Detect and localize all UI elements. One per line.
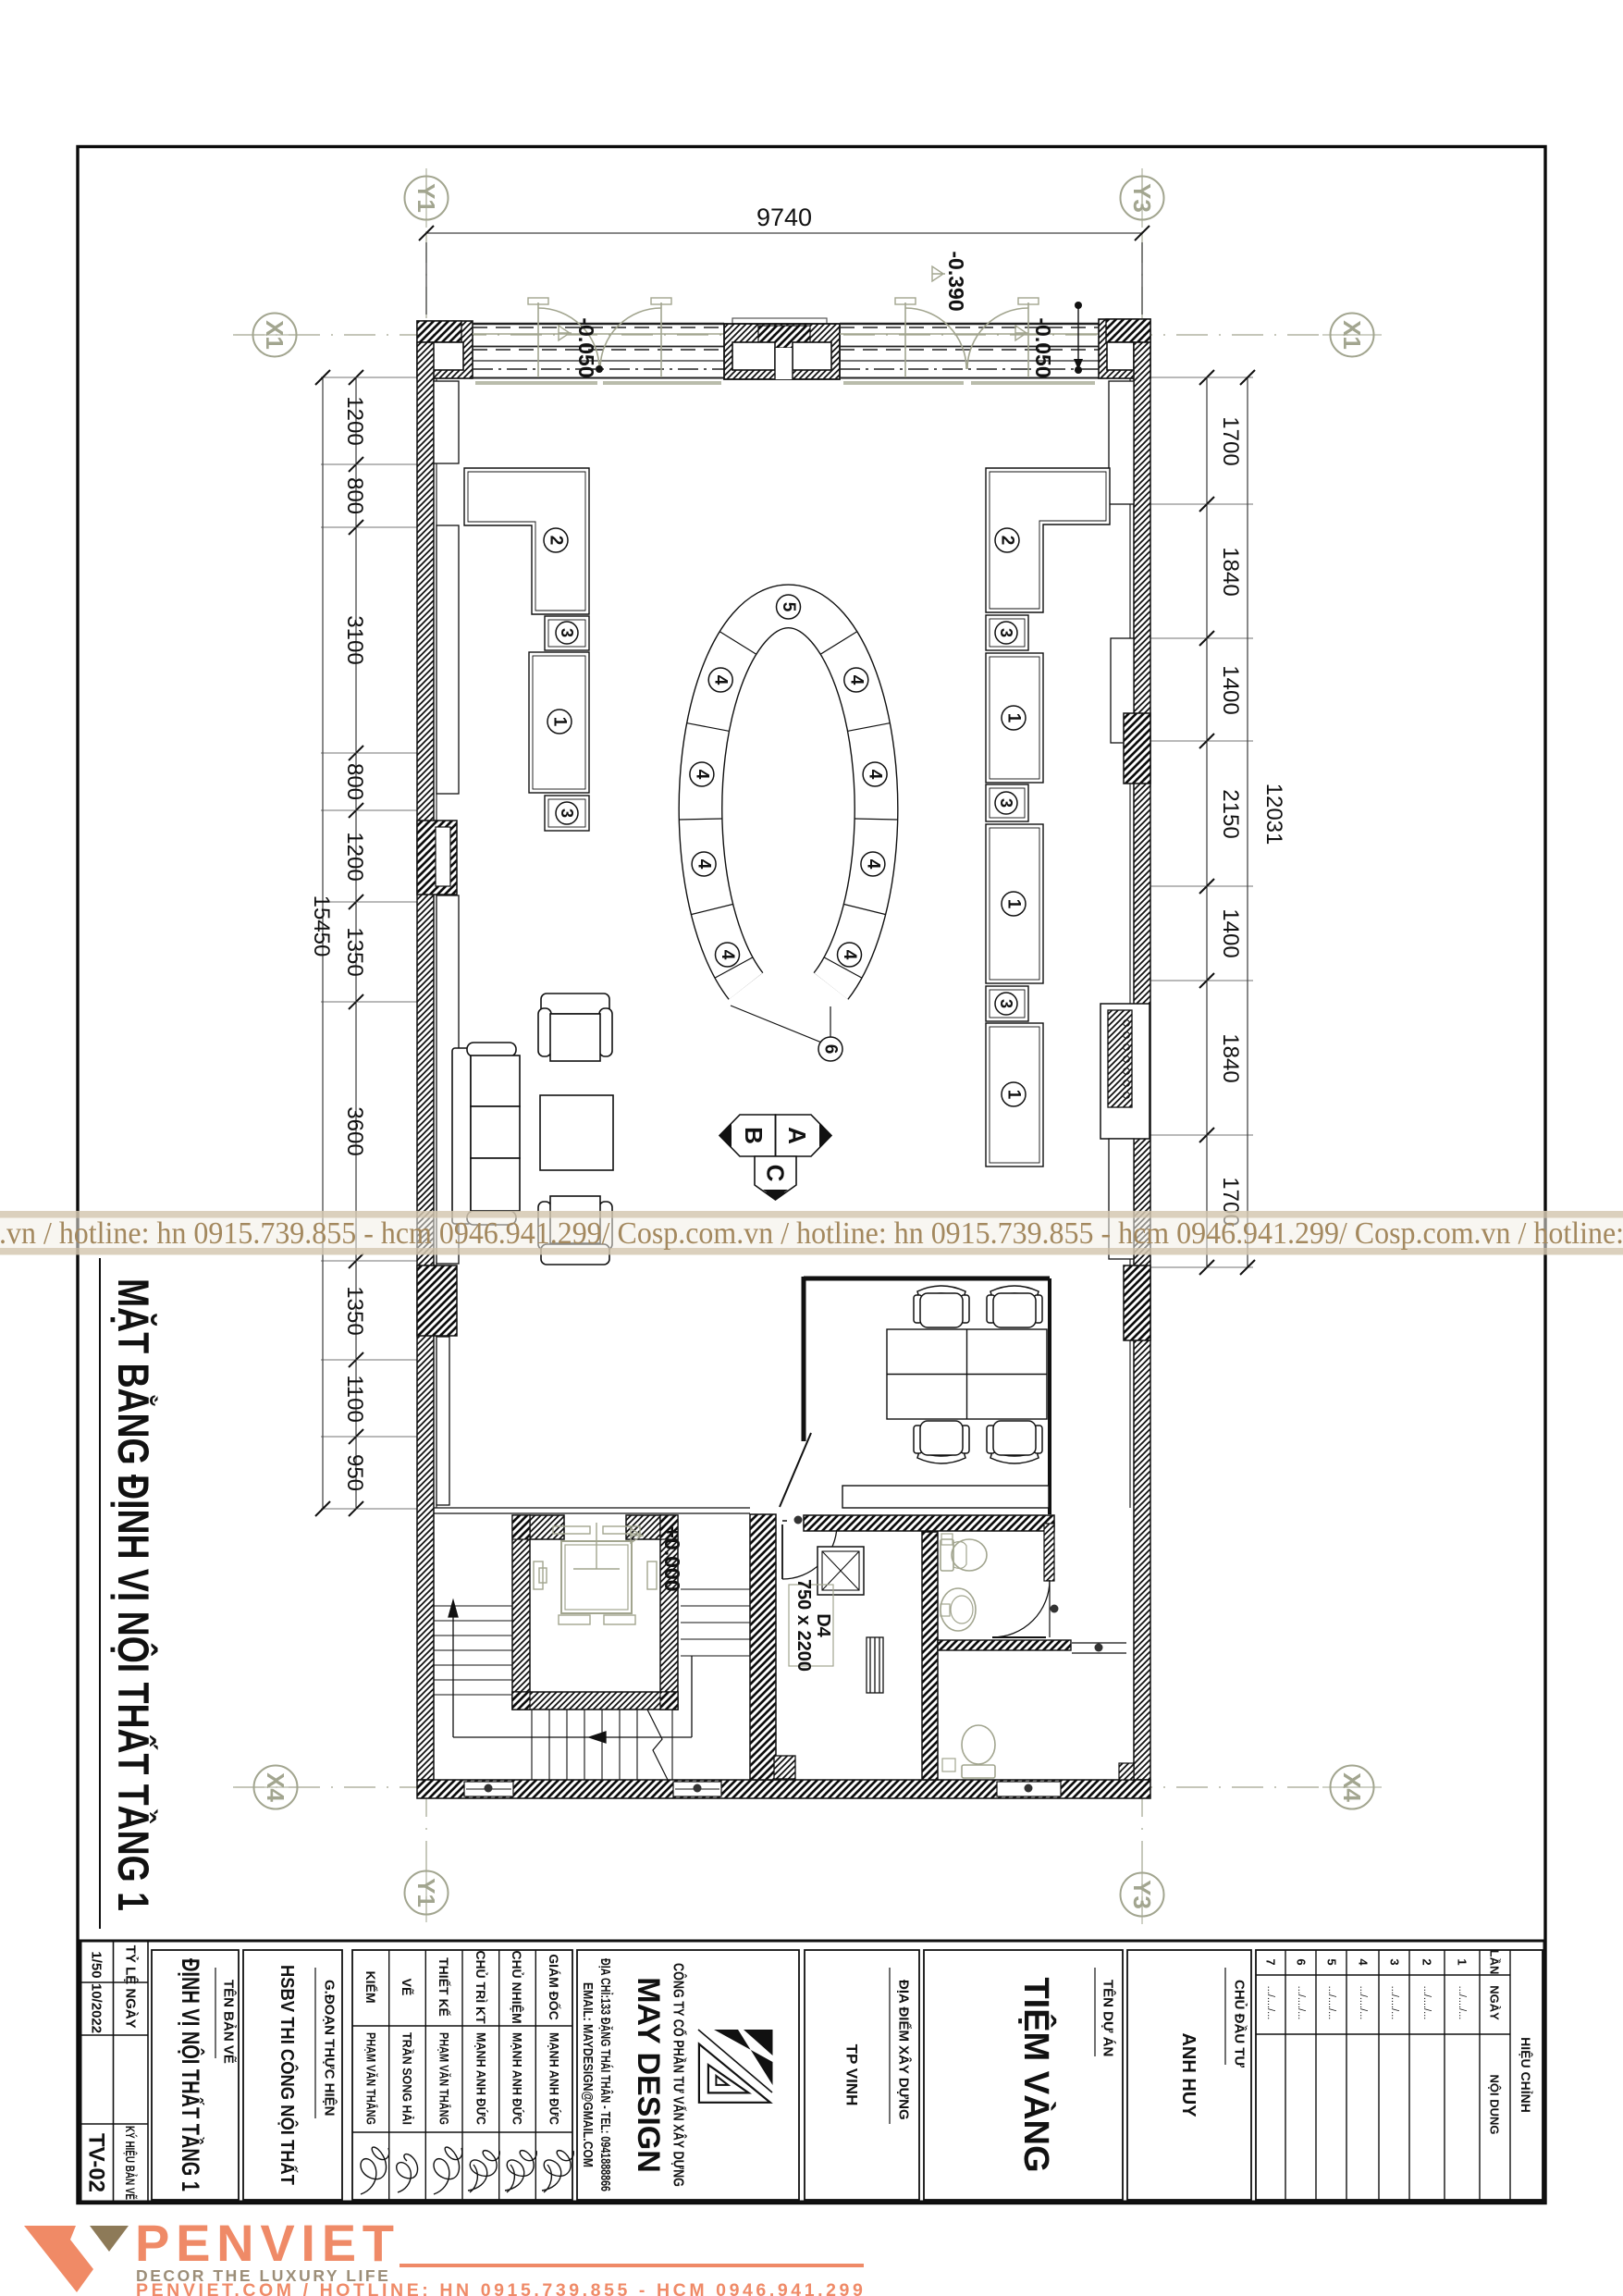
svg-text:1/50: 1/50 xyxy=(89,1951,105,1978)
svg-text:4: 4 xyxy=(695,859,714,870)
svg-text:4: 4 xyxy=(863,859,882,870)
svg-text:.../..../...: .../..../... xyxy=(1358,1986,1369,2020)
svg-text:CHỦ ĐẦU TƯ: CHỦ ĐẦU TƯ xyxy=(1232,1980,1248,2068)
svg-text:750 x 2200: 750 x 2200 xyxy=(793,1579,814,1672)
svg-text:ĐỊA ĐIỂM XÂY DỰNG: ĐỊA ĐIỂM XÂY DỰNG xyxy=(896,1980,913,2120)
svg-text:PENVIET: PENVIET xyxy=(135,2214,400,2272)
svg-text:TV-02: TV-02 xyxy=(84,2133,109,2192)
svg-text:TP VINH: TP VINH xyxy=(843,2044,861,2106)
svg-text:1400: 1400 xyxy=(1218,665,1243,714)
svg-text:3600: 3600 xyxy=(342,1106,367,1155)
svg-text:TIỆM VÀNG: TIỆM VÀNG xyxy=(1016,1977,1057,2172)
svg-text:MẠNH ANH ĐỨC: MẠNH ANH ĐỨC xyxy=(510,2032,524,2125)
svg-text:1700: 1700 xyxy=(1218,416,1243,465)
svg-text:5: 5 xyxy=(1325,1958,1339,1965)
svg-text:1: 1 xyxy=(1456,1958,1469,1965)
svg-text:VẼ: VẼ xyxy=(400,1979,415,1996)
svg-text:-0.050: -0.050 xyxy=(1031,317,1055,377)
svg-text:CHỦ TRÌ KT: CHỦ TRÌ KT xyxy=(473,1950,489,2024)
svg-text:4: 4 xyxy=(711,675,731,685)
svg-text:1200: 1200 xyxy=(342,396,367,445)
svg-text:800: 800 xyxy=(342,477,367,514)
svg-text:800: 800 xyxy=(342,763,367,800)
svg-text:3: 3 xyxy=(1388,1958,1402,1965)
svg-text:.../..../...: .../..../... xyxy=(1265,1986,1276,2020)
svg-text:5: 5 xyxy=(779,602,798,612)
svg-text:3: 3 xyxy=(558,809,576,818)
svg-text:KIỂM: KIỂM xyxy=(363,1971,379,2004)
svg-text:B: B xyxy=(740,1127,768,1144)
svg-text:4: 4 xyxy=(1357,1958,1371,1966)
svg-text:.../..../...: .../..../... xyxy=(1457,1986,1468,2020)
svg-text:p.com.vn / hotline: hn 0915.73: p.com.vn / hotline: hn 0915.739.855 - hc… xyxy=(0,1216,1623,1251)
svg-text:G.ĐOẠN THỰC HIỆN: G.ĐOẠN THỰC HIỆN xyxy=(322,1980,338,2116)
svg-text:ANH HUY: ANH HUY xyxy=(1178,2032,1199,2117)
svg-text:PHẠM VĂN THẮNG: PHẠM VĂN THẮNG xyxy=(437,2032,451,2125)
svg-text:1: 1 xyxy=(1004,899,1024,909)
svg-text:6: 6 xyxy=(821,1044,841,1055)
svg-text:TRẦN SONG HẢI: TRẦN SONG HẢI xyxy=(400,2032,414,2125)
svg-text:HIỆU CHỈNH: HIỆU CHỈNH xyxy=(1518,2037,1534,2113)
svg-text:PHẠM VĂN THẮNG: PHẠM VĂN THẮNG xyxy=(364,2032,378,2125)
svg-text:3: 3 xyxy=(997,628,1015,637)
svg-text:.../..../...: .../..../... xyxy=(1326,1986,1337,2020)
svg-text:1350: 1350 xyxy=(342,1286,367,1335)
svg-text:1: 1 xyxy=(550,717,570,727)
svg-text:12031: 12031 xyxy=(1261,784,1286,846)
svg-text:4: 4 xyxy=(692,770,711,780)
svg-text:2: 2 xyxy=(998,536,1017,546)
svg-text:A: A xyxy=(783,1127,811,1144)
svg-text:9740: 9740 xyxy=(756,204,812,231)
svg-text:TÊN BẢN VẼ: TÊN BẢN VẼ xyxy=(221,1980,238,2064)
svg-text:1840: 1840 xyxy=(1218,1033,1243,1082)
svg-text:4: 4 xyxy=(718,950,737,960)
svg-text:950: 950 xyxy=(342,1454,367,1491)
svg-text:2: 2 xyxy=(1420,1958,1434,1965)
svg-text:2: 2 xyxy=(547,536,566,546)
svg-text:2150: 2150 xyxy=(1218,789,1243,838)
svg-text:KÝ HIỆU BẢN VẼ: KÝ HIỆU BẢN VẼ xyxy=(123,2126,139,2200)
svg-text:1100: 1100 xyxy=(342,1375,367,1423)
svg-text:1840: 1840 xyxy=(1218,547,1243,596)
svg-text:LẦN: LẦN xyxy=(1488,1950,1502,1975)
svg-text:4: 4 xyxy=(866,770,885,780)
svg-text:D4: D4 xyxy=(813,1613,833,1637)
svg-text:CHỦ NHIỆM: CHỦ NHIỆM xyxy=(510,1950,525,2023)
svg-text:3: 3 xyxy=(997,999,1015,1008)
svg-text:3: 3 xyxy=(997,798,1015,808)
svg-text:X4: X4 xyxy=(1338,1772,1366,1802)
svg-text:1: 1 xyxy=(1004,1090,1024,1100)
svg-text:.../..../...: .../..../... xyxy=(1421,1986,1432,2020)
svg-text:NGÀY: NGÀY xyxy=(1488,1985,1502,2020)
svg-text:MAY DESIGN: MAY DESIGN xyxy=(631,1977,666,2173)
svg-text:CÔNG TY CỔ PHẦN TƯ VẤN XÂY DỰN: CÔNG TY CỔ PHẦN TƯ VẤN XÂY DỰNG xyxy=(670,1963,688,2187)
svg-text:-0.050: -0.050 xyxy=(574,317,598,377)
svg-text:1400: 1400 xyxy=(1218,908,1243,957)
svg-text:.../..../...: .../..../... xyxy=(1296,1986,1307,2020)
svg-text:1200: 1200 xyxy=(342,832,367,881)
svg-text:7: 7 xyxy=(1264,1958,1278,1965)
svg-text:15450: 15450 xyxy=(309,895,334,957)
svg-text:ĐỊNH VỊ NỘI THẤT TẦNG 1: ĐỊNH VỊ NỘI THẤT TẦNG 1 xyxy=(177,1958,205,2191)
svg-text:Y3: Y3 xyxy=(1128,1880,1156,1909)
svg-text:4: 4 xyxy=(840,950,859,960)
svg-text:4: 4 xyxy=(846,675,866,685)
svg-text:.../..../...: .../..../... xyxy=(1389,1986,1400,2020)
svg-text:+0.000: +0.000 xyxy=(660,1526,684,1592)
svg-text:THIẾT KẾ: THIẾT KẾ xyxy=(436,1957,451,2017)
svg-text:X4: X4 xyxy=(262,1772,289,1802)
svg-text:Y1: Y1 xyxy=(412,183,440,213)
svg-text:TỶ LỆ: TỶ LỆ xyxy=(123,1945,140,1985)
svg-text:MẠNH ANH ĐỨC: MẠNH ANH ĐỨC xyxy=(474,2032,488,2125)
svg-text:ĐỊA CHỈ:133 ĐẶNG THÁI THÂN - T: ĐỊA CHỈ:133 ĐẶNG THÁI THÂN - TEL: 094188… xyxy=(597,1958,614,2191)
svg-text:Y1: Y1 xyxy=(412,1878,440,1907)
svg-text:6: 6 xyxy=(1295,1958,1309,1965)
svg-text:NGÀY: NGÀY xyxy=(123,1988,139,2028)
svg-text:C: C xyxy=(762,1165,790,1182)
svg-text:1: 1 xyxy=(1004,713,1024,723)
svg-text:1350: 1350 xyxy=(342,927,367,976)
svg-text:X1: X1 xyxy=(261,320,289,350)
svg-text:TÊN DỰ ÁN: TÊN DỰ ÁN xyxy=(1100,1980,1117,2056)
svg-text:EMAIL: MAYDESIGN@GMAIL.COM: EMAIL: MAYDESIGN@GMAIL.COM xyxy=(580,1982,595,2167)
svg-text:HSBV THI CÔNG NỘI THẤT: HSBV THI CÔNG NỘI THẤT xyxy=(277,1965,299,2185)
svg-text:3100: 3100 xyxy=(342,615,367,664)
svg-text:10/2022: 10/2022 xyxy=(89,1983,105,2033)
svg-text:MẠNH ANH ĐỨC: MẠNH ANH ĐỨC xyxy=(547,2032,561,2125)
svg-text:3: 3 xyxy=(558,628,576,637)
svg-text:-0.390: -0.390 xyxy=(944,251,968,311)
svg-text:MẶT BẰNG ĐỊNH VỊ NỘI THẤT TẦNG: MẶT BẰNG ĐỊNH VỊ NỘI THẤT TẦNG 1 xyxy=(109,1278,158,1911)
svg-text:X1: X1 xyxy=(1338,320,1366,350)
svg-text:GIÁM ĐỐC: GIÁM ĐỐC xyxy=(547,1954,562,2020)
svg-text:NỘI DUNG: NỘI DUNG xyxy=(1488,2075,1502,2135)
svg-text:Y3: Y3 xyxy=(1128,183,1156,213)
